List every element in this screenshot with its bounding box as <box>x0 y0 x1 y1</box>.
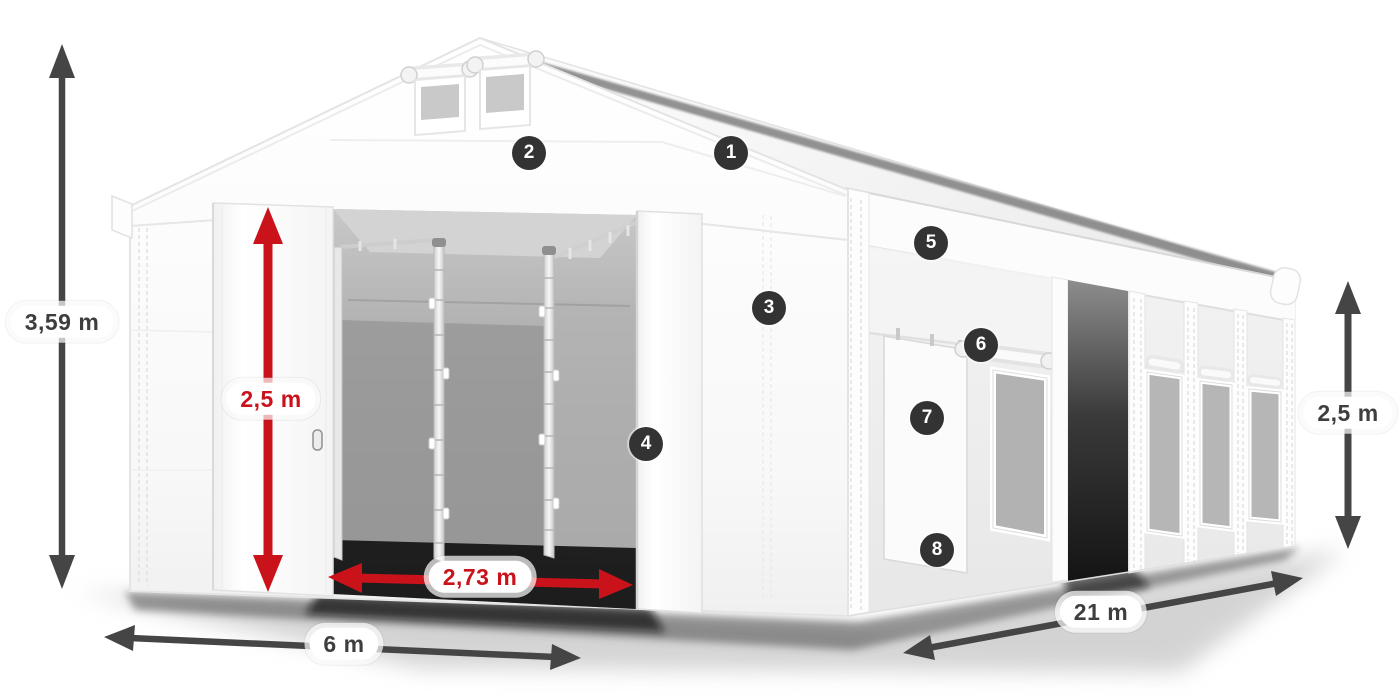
side-wall <box>845 188 1302 616</box>
door-height-label: 2,5 m <box>226 383 315 415</box>
eave-cap <box>112 196 132 238</box>
sliding-door-right <box>637 211 702 613</box>
feature-badge-7: 7 <box>910 401 944 435</box>
side-window-3 <box>1200 372 1232 529</box>
total-height-label: 3,59 m <box>11 306 114 338</box>
front-width-label: 6 m <box>309 628 378 660</box>
feature-badge-6: 6 <box>964 328 998 362</box>
feature-badge-3: 3 <box>752 291 786 325</box>
side-height-label: 2,5 m <box>1303 397 1392 429</box>
feature-badge-8: 8 <box>920 533 954 567</box>
side-doorway <box>1068 280 1128 581</box>
tent-illustration <box>0 0 1400 700</box>
tent-dimensions-diagram: 3,59 m 2,5 m 2,73 m 6 m 21 m 2,5 m 1 2 3… <box>0 0 1400 700</box>
door-width-label: 2,73 m <box>429 561 532 593</box>
feature-badge-4: 4 <box>629 427 663 461</box>
side-window-2 <box>1147 362 1182 536</box>
front-opening <box>333 209 640 609</box>
feature-badge-1: 1 <box>714 136 748 170</box>
feature-badge-5: 5 <box>914 226 948 260</box>
side-window-4 <box>1249 380 1281 522</box>
length-label: 21 m <box>1060 596 1142 628</box>
door-handle <box>313 430 322 450</box>
feature-badge-2: 2 <box>512 136 546 170</box>
